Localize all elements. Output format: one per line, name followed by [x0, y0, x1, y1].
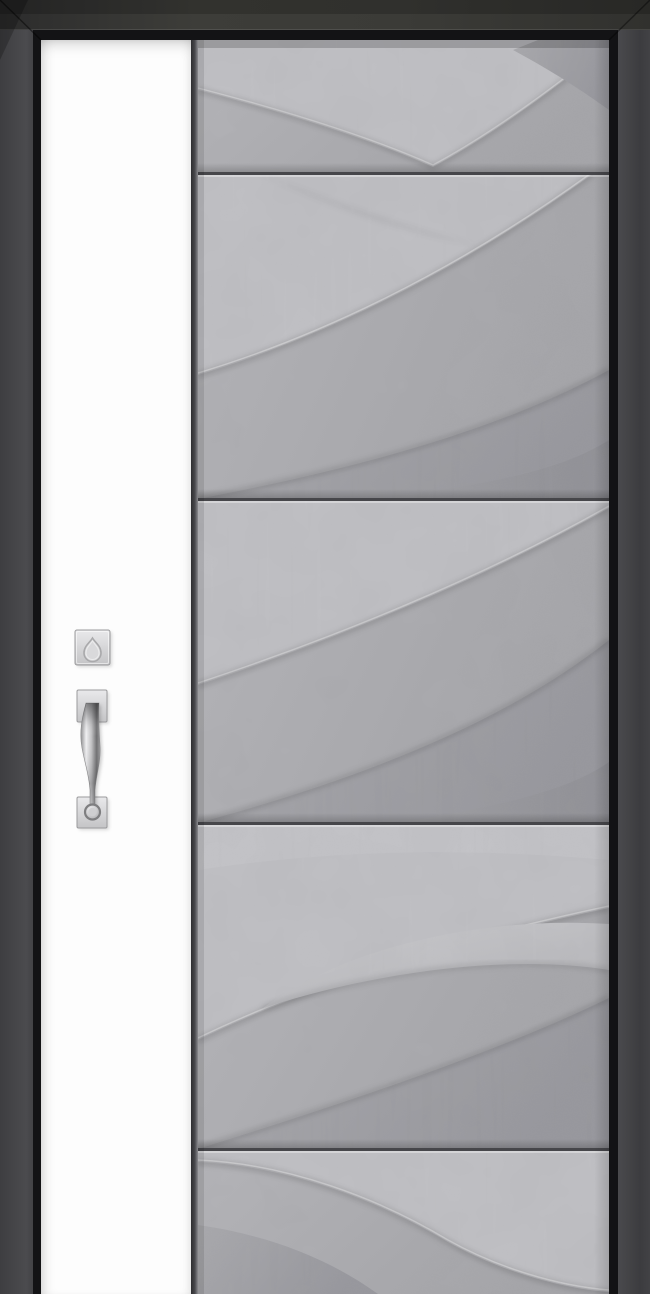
door-frame-head — [0, 0, 650, 30]
door-leaf — [41, 40, 609, 1294]
concrete-wave-panel — [198, 40, 609, 1294]
door-frame-right-jamb — [618, 0, 650, 1294]
concrete-grain-texture — [198, 40, 609, 1294]
thumb-button-center — [88, 808, 96, 816]
deadbolt-escutcheon — [75, 630, 112, 667]
door-frame-left-jamb — [0, 0, 33, 1294]
stile-panel-divider — [191, 40, 198, 1294]
concrete-relief-graphic — [198, 40, 609, 1294]
door-product-image — [0, 0, 650, 1294]
door-hardware — [41, 40, 191, 1294]
pull-handle — [77, 690, 109, 830]
